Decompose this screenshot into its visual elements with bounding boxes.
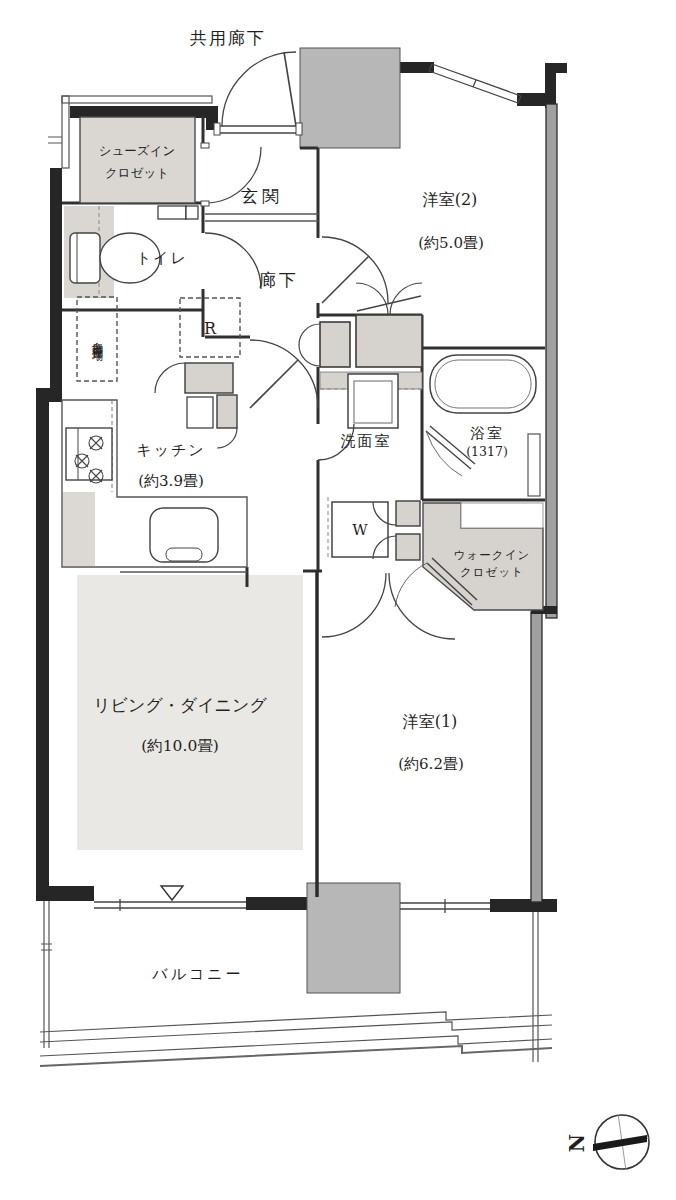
label-living-dining: リビング・ダイニング xyxy=(93,694,267,717)
shoes-in-closet-area xyxy=(80,117,195,203)
label-western-room-1: 洋室(1) xyxy=(403,712,458,733)
label-western-room-2-size: (約5.0畳) xyxy=(418,234,484,253)
kitchen-cabinet-b xyxy=(187,397,213,428)
label-western-room-1-size: (約6.2畳) xyxy=(398,755,464,774)
entrance-door xyxy=(214,52,302,135)
hall-cabinet-doors xyxy=(299,324,320,366)
label-balcony: バルコニー xyxy=(152,965,243,984)
label-walk-in-closet-1: ウォークイン xyxy=(454,548,530,563)
label-compass-north: N xyxy=(565,1134,589,1152)
sink-icon xyxy=(150,508,218,562)
compass-icon xyxy=(593,1115,649,1169)
label-shoes-in-closet-2: クロゼット xyxy=(105,165,169,182)
label-hallway: 廊下 xyxy=(259,269,299,292)
floor-plan: 共用廊下 シューズイン クロゼット 玄関 トイレ 廊下 洋室(2) (約5.0畳… xyxy=(0,0,676,1200)
floorplan-linework xyxy=(0,0,676,1200)
toilet-door-arc xyxy=(205,233,261,289)
bedroom1-double-doors xyxy=(322,573,455,639)
label-bathroom-size: (1317) xyxy=(466,444,508,459)
pillar-top xyxy=(300,48,400,148)
kitchen-cabinet-c xyxy=(217,395,237,428)
label-kitchen-size: (約3.9畳) xyxy=(138,472,204,491)
label-bathroom: 浴室 xyxy=(471,424,504,443)
label-kitchen: キッチン xyxy=(136,441,205,460)
entry-triangle-marker xyxy=(161,886,183,900)
kitchen-cabinet-door-arc xyxy=(155,363,185,393)
kitchen-cabinet-door-arc2 xyxy=(217,428,237,448)
right-wall-upper xyxy=(546,104,557,618)
hall-cabinet xyxy=(320,322,350,367)
kitchen-cabinet-a xyxy=(185,363,233,393)
label-washer: W xyxy=(352,521,367,539)
entrance-step xyxy=(205,214,318,221)
stove-icon xyxy=(66,428,112,483)
pillar-bottom xyxy=(307,883,400,993)
kitchen-counter-end xyxy=(63,492,95,566)
bathroom-niche xyxy=(528,434,540,496)
kitchen-door xyxy=(250,340,318,408)
label-toilet: トイレ xyxy=(136,249,188,268)
balcony-outer-edge xyxy=(40,1046,552,1066)
label-walk-in-closet-2: クロゼット xyxy=(460,565,524,580)
wic-niche xyxy=(461,503,543,528)
label-western-room-2: 洋室(2) xyxy=(423,190,478,211)
bathtub-icon xyxy=(430,355,536,413)
angled-window xyxy=(429,64,521,103)
label-dish-shelf-space: 食器棚置場 xyxy=(90,333,105,343)
bedroom2-closet-doors xyxy=(356,283,422,315)
label-refrigerator: R xyxy=(204,319,216,338)
vanity-icon xyxy=(348,374,398,428)
label-entrance: 玄関 xyxy=(241,185,283,208)
label-shoes-in-closet-1: シューズイン xyxy=(99,143,175,160)
toilet-shelf xyxy=(158,206,198,219)
bedroom2-door xyxy=(322,237,388,303)
label-living-dining-size: (約10.0畳) xyxy=(141,736,219,757)
linen-shelf-b xyxy=(396,534,420,560)
label-washroom: 洗面室 xyxy=(341,432,392,451)
bedroom2-closet xyxy=(356,315,422,367)
balcony-rails xyxy=(40,901,552,1062)
label-common-corridor: 共用廊下 xyxy=(190,27,266,50)
right-wall-lower xyxy=(531,612,542,902)
linen-shelf-a xyxy=(396,501,420,526)
